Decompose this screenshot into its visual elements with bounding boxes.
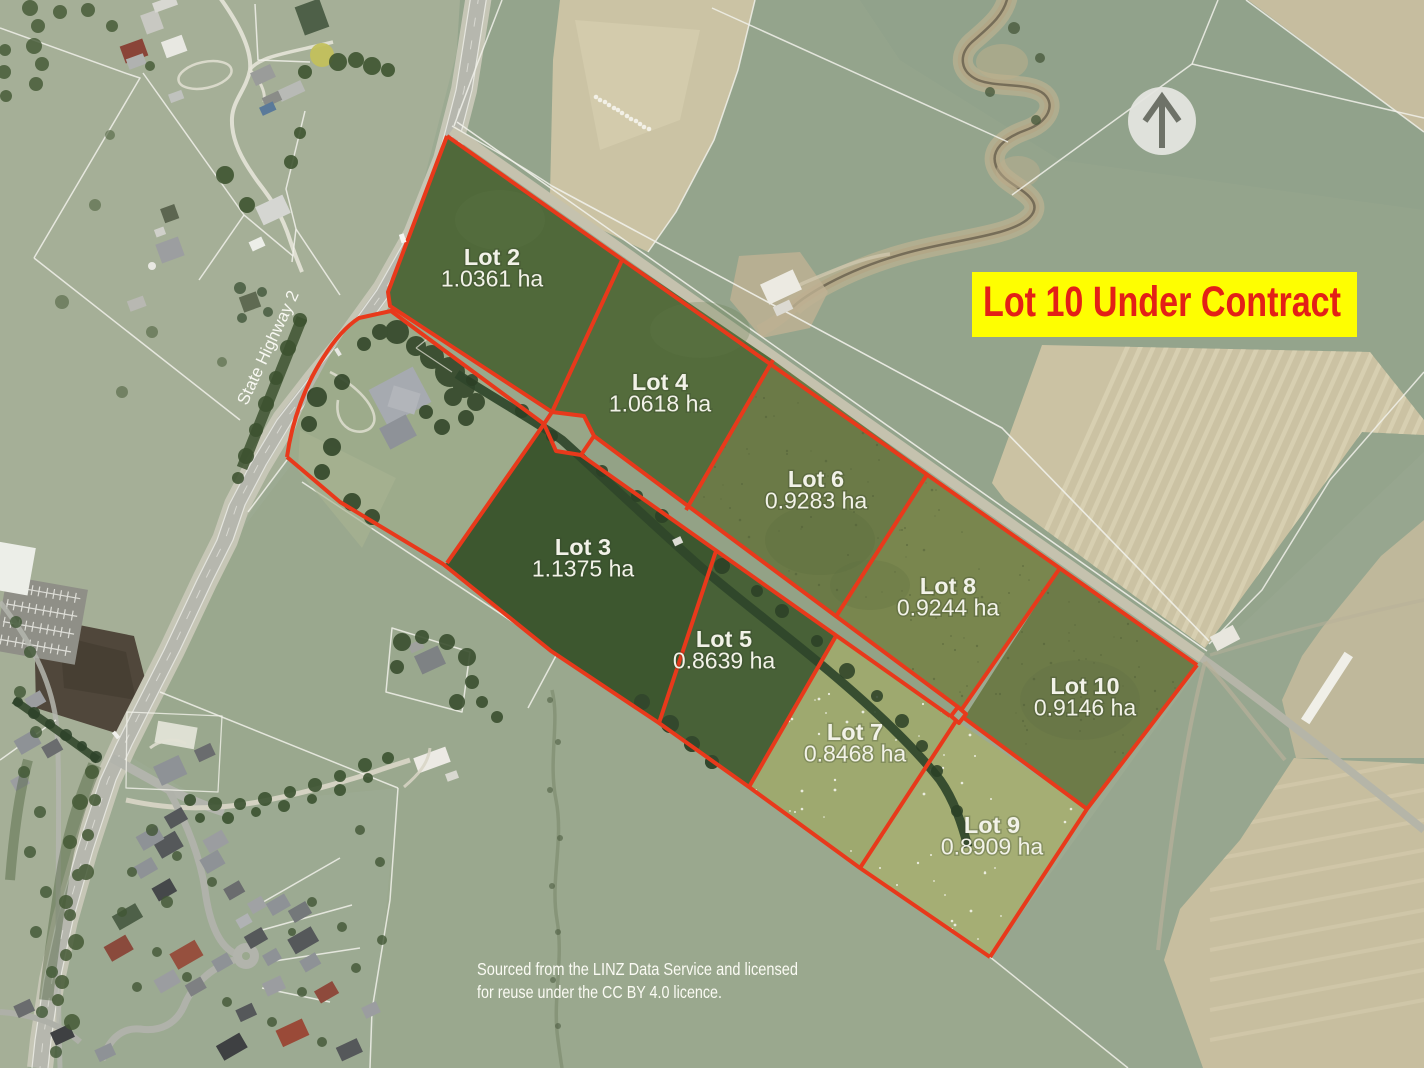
svg-text:1.0618 ha: 1.0618 ha bbox=[609, 391, 712, 417]
svg-text:Lot 10 Under Contract: Lot 10 Under Contract bbox=[983, 278, 1341, 326]
svg-text:1.1375 ha: 1.1375 ha bbox=[532, 556, 635, 582]
svg-text:for reuse under the CC BY 4.0: for reuse under the CC BY 4.0 licence. bbox=[477, 982, 722, 1002]
svg-text:0.8909 ha: 0.8909 ha bbox=[941, 834, 1044, 860]
svg-text:0.9146 ha: 0.9146 ha bbox=[1034, 695, 1137, 721]
svg-text:0.8639 ha: 0.8639 ha bbox=[673, 648, 776, 674]
svg-text:0.9283 ha: 0.9283 ha bbox=[765, 488, 868, 514]
svg-text:Sourced from the LINZ Data Ser: Sourced from the LINZ Data Service and l… bbox=[477, 959, 798, 979]
svg-text:0.9244 ha: 0.9244 ha bbox=[897, 595, 1000, 621]
svg-text:0.8468 ha: 0.8468 ha bbox=[804, 741, 907, 767]
svg-text:1.0361 ha: 1.0361 ha bbox=[441, 266, 544, 292]
